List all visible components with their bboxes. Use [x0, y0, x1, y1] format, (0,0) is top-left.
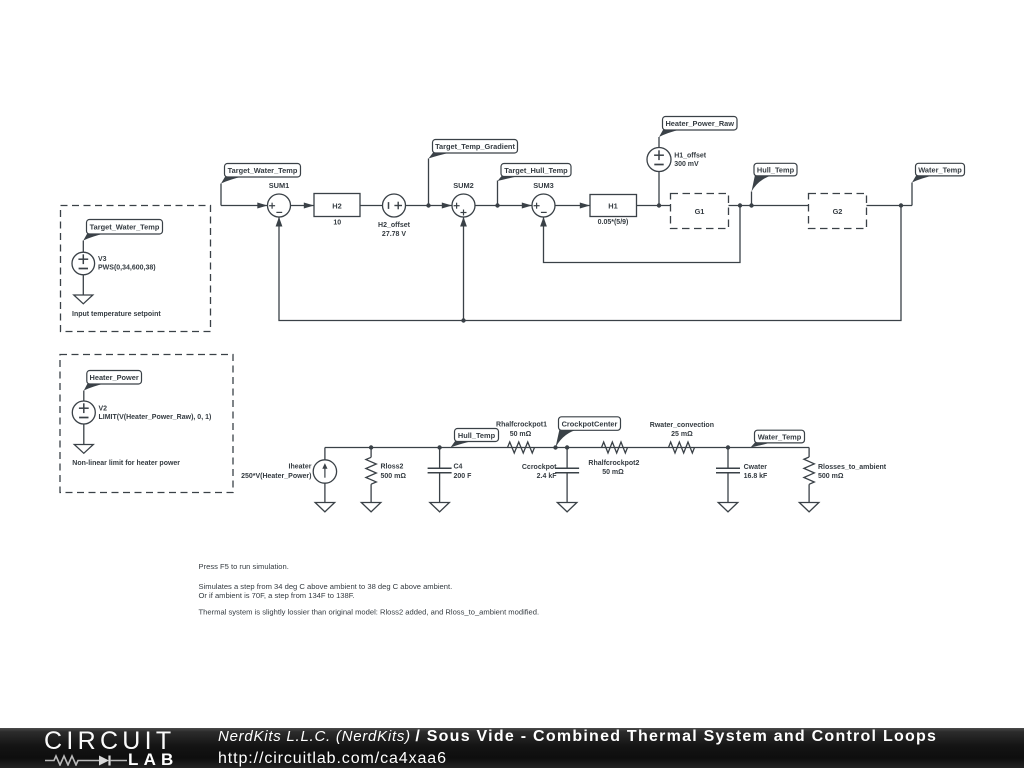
svg-text:Target_Temp_Gradient: Target_Temp_Gradient — [435, 142, 515, 151]
svg-text:Ccrockpot: Ccrockpot — [522, 464, 557, 471]
svg-text:Target_Water_Temp: Target_Water_Temp — [228, 166, 298, 175]
svg-text:G1: G1 — [695, 207, 705, 216]
svg-text:Rhalfcrockpot2: Rhalfcrockpot2 — [588, 460, 639, 467]
svg-text:SUM1: SUM1 — [269, 181, 290, 190]
svg-text:500 mΩ: 500 mΩ — [381, 473, 407, 480]
svg-text:Target_Hull_Temp: Target_Hull_Temp — [504, 166, 568, 175]
svg-text:H1_offset: H1_offset — [674, 152, 707, 159]
svg-text:Heater_Power: Heater_Power — [90, 373, 139, 382]
svg-text:Or if ambient is 70F, a step f: Or if ambient is 70F, a step from 134F t… — [199, 591, 355, 600]
svg-text:50 mΩ: 50 mΩ — [602, 469, 624, 476]
svg-text:Simulates a step from 34 deg C: Simulates a step from 34 deg C above amb… — [199, 582, 453, 591]
svg-text:16.8 kF: 16.8 kF — [744, 473, 768, 480]
svg-text:300 mV: 300 mV — [674, 161, 699, 168]
svg-text:Input temperature setpoint: Input temperature setpoint — [72, 311, 161, 318]
svg-text:0.05*(5/9): 0.05*(5/9) — [598, 219, 629, 226]
svg-text:10: 10 — [333, 219, 341, 226]
svg-text:Thermal system is slightly los: Thermal system is slightly lossier than … — [199, 608, 540, 617]
svg-text:C4: C4 — [454, 464, 463, 471]
svg-text:25 mΩ: 25 mΩ — [671, 431, 693, 438]
svg-text:H2_offset: H2_offset — [378, 222, 411, 229]
svg-text:Heater_Power_Raw: Heater_Power_Raw — [665, 119, 734, 128]
svg-text:H1: H1 — [608, 201, 617, 210]
svg-text:Hull_Temp: Hull_Temp — [757, 166, 795, 175]
svg-text:H2: H2 — [332, 201, 341, 210]
svg-text:200 F: 200 F — [454, 473, 473, 480]
svg-text:Rwater_convection: Rwater_convection — [650, 422, 714, 429]
svg-text:Water_Temp: Water_Temp — [918, 166, 962, 175]
svg-text:Target_Water_Temp: Target_Water_Temp — [90, 223, 160, 232]
svg-text:Iheater: Iheater — [289, 464, 312, 471]
svg-text:SUM2: SUM2 — [453, 181, 474, 190]
svg-text:Non-linear limit for heater po: Non-linear limit for heater power — [72, 460, 180, 467]
svg-text:SUM3: SUM3 — [533, 181, 554, 190]
svg-text:Hull_Temp: Hull_Temp — [458, 431, 496, 440]
svg-text:Rlosses_to_ambient: Rlosses_to_ambient — [818, 464, 887, 471]
svg-text:500 mΩ: 500 mΩ — [818, 473, 844, 480]
svg-text:V2: V2 — [99, 406, 108, 413]
svg-text:CrockpotCenter: CrockpotCenter — [562, 419, 618, 428]
svg-text:V3: V3 — [98, 256, 107, 263]
svg-text:G2: G2 — [833, 207, 843, 216]
svg-text:27.78 V: 27.78 V — [382, 231, 406, 238]
svg-text:Press F5 to run simulation.: Press F5 to run simulation. — [199, 562, 289, 571]
svg-text:Rhalfcrockpot1: Rhalfcrockpot1 — [496, 421, 547, 428]
svg-text:Water_Temp: Water_Temp — [758, 432, 802, 441]
svg-text:2.4 kF: 2.4 kF — [537, 473, 558, 480]
svg-text:LIMIT(V(Heater_Power_Raw), 0,: LIMIT(V(Heater_Power_Raw), 0, 1) — [99, 414, 212, 421]
svg-text:50 mΩ: 50 mΩ — [510, 431, 532, 438]
svg-text:Rloss2: Rloss2 — [381, 464, 404, 471]
svg-text:Cwater: Cwater — [744, 464, 768, 471]
svg-text:250*V(Heater_Power): 250*V(Heater_Power) — [241, 473, 311, 480]
svg-text:PWS(0,34,600,38): PWS(0,34,600,38) — [98, 264, 156, 271]
